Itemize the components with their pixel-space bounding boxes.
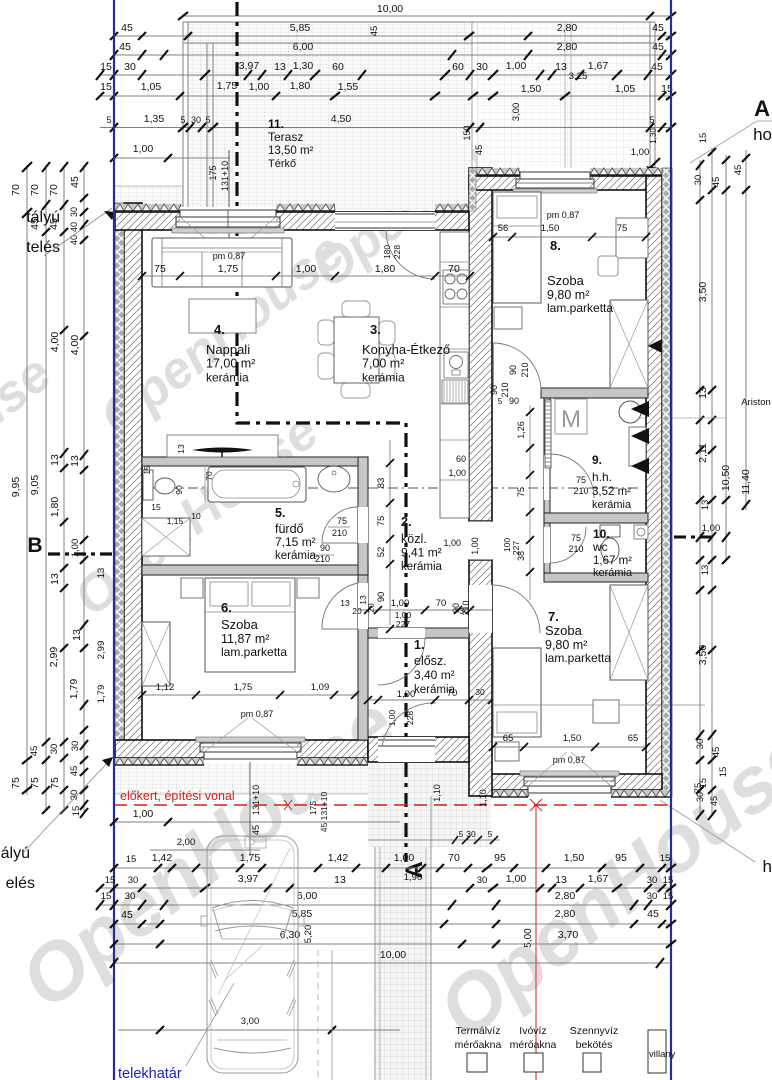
svg-text:lam.parketta: lam.parketta xyxy=(547,301,613,315)
svg-text:13: 13 xyxy=(555,61,567,73)
svg-text:10,00: 10,00 xyxy=(380,949,406,961)
svg-text:telés: telés xyxy=(26,239,60,256)
svg-text:1,00: 1,00 xyxy=(391,598,410,609)
svg-text:13: 13 xyxy=(555,874,567,886)
svg-text:1,75: 1,75 xyxy=(240,852,261,864)
svg-text:20: 20 xyxy=(352,606,362,616)
svg-text:5,85: 5,85 xyxy=(292,908,313,920)
svg-text:30: 30 xyxy=(475,687,485,697)
svg-text:1,67: 1,67 xyxy=(588,60,609,72)
svg-text:5: 5 xyxy=(488,830,493,839)
svg-text:1,00: 1,00 xyxy=(448,468,466,478)
svg-text:7.: 7. xyxy=(548,609,559,624)
svg-text:ályú: ályú xyxy=(1,845,30,862)
svg-text:70: 70 xyxy=(29,184,41,196)
svg-text:70: 70 xyxy=(10,184,22,196)
svg-text:210: 210 xyxy=(573,486,588,496)
svg-text:11,40: 11,40 xyxy=(740,469,752,495)
svg-text:pm 0,87: pm 0,87 xyxy=(213,251,246,261)
svg-text:2,99: 2,99 xyxy=(48,647,60,668)
svg-text:Konyha-Étkező: Konyha-Étkező xyxy=(362,342,450,357)
svg-text:4,00: 4,00 xyxy=(69,335,81,356)
svg-text:13: 13 xyxy=(69,455,81,467)
svg-text:1,00: 1,00 xyxy=(133,143,154,155)
svg-text:4,50: 4,50 xyxy=(331,113,352,125)
svg-text:45: 45 xyxy=(119,41,131,53)
svg-text:60: 60 xyxy=(456,454,466,464)
svg-text:75: 75 xyxy=(337,516,347,526)
svg-text:15: 15 xyxy=(718,767,729,778)
svg-text:45: 45 xyxy=(711,177,722,188)
svg-text:M: M xyxy=(561,406,581,433)
svg-text:1,10: 1,10 xyxy=(432,784,442,802)
svg-text:15: 15 xyxy=(100,81,112,93)
svg-text:45: 45 xyxy=(29,746,40,757)
svg-text:30: 30 xyxy=(477,875,488,886)
svg-text:30: 30 xyxy=(69,207,79,217)
svg-text:1.: 1. xyxy=(414,638,424,652)
svg-text:70: 70 xyxy=(204,471,214,481)
svg-text:kerámia: kerámia xyxy=(206,371,249,385)
svg-text:45: 45 xyxy=(652,22,664,34)
svg-text:45: 45 xyxy=(69,176,81,188)
svg-text:előkert, építési vonal: előkert, építési vonal xyxy=(120,789,235,803)
svg-text:70: 70 xyxy=(436,598,447,609)
svg-text:210: 210 xyxy=(520,362,530,377)
svg-text:40: 40 xyxy=(69,222,79,232)
svg-text:15: 15 xyxy=(71,806,82,817)
svg-text:1,00: 1,00 xyxy=(394,852,415,864)
svg-text:65: 65 xyxy=(628,733,639,744)
svg-text:kerámia: kerámia xyxy=(401,561,443,573)
svg-text:11.: 11. xyxy=(268,117,284,131)
svg-text:13: 13 xyxy=(96,568,107,579)
svg-text:B: B xyxy=(27,534,42,557)
svg-text:1,00: 1,00 xyxy=(296,263,317,275)
svg-text:kerámia: kerámia xyxy=(275,550,317,562)
svg-text:h.h.: h.h. xyxy=(592,470,612,484)
svg-text:30: 30 xyxy=(695,739,706,750)
svg-text:13: 13 xyxy=(176,444,186,454)
svg-text:Szennyvíz: Szennyvíz xyxy=(570,1025,618,1037)
svg-text:1,67: 1,67 xyxy=(588,873,609,885)
svg-text:3,97: 3,97 xyxy=(238,873,259,885)
svg-text:60: 60 xyxy=(332,61,344,73)
svg-text:228: 228 xyxy=(392,245,402,259)
svg-text:10: 10 xyxy=(191,511,201,521)
svg-text:13,50 m²: 13,50 m² xyxy=(268,145,314,157)
svg-text:30: 30 xyxy=(695,792,705,802)
svg-text:bekötés: bekötés xyxy=(576,1039,613,1051)
svg-text:2,11: 2,11 xyxy=(697,443,709,463)
svg-text:3,97: 3,97 xyxy=(239,60,260,72)
svg-text:10,50: 10,50 xyxy=(720,465,732,491)
svg-text:13: 13 xyxy=(274,61,286,73)
svg-text:3,25: 3,25 xyxy=(569,71,588,82)
svg-text:wc: wc xyxy=(592,540,608,554)
svg-text:3.: 3. xyxy=(370,322,381,337)
svg-text:5,20: 5,20 xyxy=(303,925,314,944)
svg-text:mérőakna: mérőakna xyxy=(510,1039,557,1051)
svg-text:9,95: 9,95 xyxy=(10,477,22,498)
svg-text:45: 45 xyxy=(369,26,380,37)
svg-text:131+10: 131+10 xyxy=(220,161,230,191)
svg-text:h: h xyxy=(763,857,772,876)
svg-text:45: 45 xyxy=(121,909,133,921)
svg-text:Terasz: Terasz xyxy=(268,130,303,144)
svg-text:70: 70 xyxy=(448,852,460,864)
svg-text:90: 90 xyxy=(320,543,330,553)
svg-text:1,80: 1,80 xyxy=(375,263,396,275)
svg-text:1,05: 1,05 xyxy=(141,81,162,93)
svg-text:40: 40 xyxy=(69,235,79,245)
svg-text:3,50: 3,50 xyxy=(697,282,709,303)
svg-text:70: 70 xyxy=(48,184,60,196)
svg-text:5: 5 xyxy=(180,115,185,125)
svg-text:1,00: 1,00 xyxy=(631,147,650,158)
svg-text:45: 45 xyxy=(251,825,261,835)
svg-text:1,00: 1,00 xyxy=(133,808,154,820)
svg-text:1,15: 1,15 xyxy=(167,516,184,526)
svg-text:1,79: 1,79 xyxy=(68,679,80,700)
svg-text:1,26: 1,26 xyxy=(516,421,526,439)
svg-text:2,80: 2,80 xyxy=(555,890,576,902)
svg-text:45: 45 xyxy=(69,766,80,777)
svg-text:1,50: 1,50 xyxy=(564,852,585,864)
svg-text:70: 70 xyxy=(448,263,460,275)
svg-text:8.: 8. xyxy=(550,238,561,253)
svg-text:kerámia: kerámia xyxy=(593,567,633,579)
svg-text:45 131+10: 45 131+10 xyxy=(319,792,329,833)
svg-text:4,00: 4,00 xyxy=(49,332,61,353)
svg-text:9,41 m²: 9,41 m² xyxy=(401,546,442,560)
svg-text:1,00: 1,00 xyxy=(249,81,270,93)
svg-text:1,10: 1,10 xyxy=(478,789,488,807)
svg-text:5,85: 5,85 xyxy=(290,22,311,34)
svg-text:210: 210 xyxy=(332,528,347,538)
svg-text:45: 45 xyxy=(651,61,663,73)
svg-text:30: 30 xyxy=(124,61,136,73)
svg-text:Szoba: Szoba xyxy=(221,617,259,632)
svg-text:pm 0,87: pm 0,87 xyxy=(547,210,580,220)
svg-text:30: 30 xyxy=(128,875,139,886)
svg-text:1,75: 1,75 xyxy=(234,682,253,693)
svg-text:60: 60 xyxy=(452,61,464,73)
svg-text:2.: 2. xyxy=(401,515,411,529)
svg-text:4.: 4. xyxy=(214,322,225,337)
svg-text:1,00: 1,00 xyxy=(702,523,721,534)
svg-text:elés: elés xyxy=(6,875,35,892)
svg-text:9.: 9. xyxy=(592,453,602,467)
svg-text:1,90: 1,90 xyxy=(404,872,423,883)
svg-text:227: 227 xyxy=(396,619,410,629)
svg-text:Ariston: Ariston xyxy=(741,397,771,408)
svg-text:1,50: 1,50 xyxy=(563,733,582,744)
svg-text:90: 90 xyxy=(174,485,184,495)
svg-text:Szoba: Szoba xyxy=(545,623,583,638)
svg-text:1,79: 1,79 xyxy=(96,685,107,704)
svg-text:2,00: 2,00 xyxy=(177,837,196,848)
svg-text:3,40 m²: 3,40 m² xyxy=(414,668,455,682)
svg-text:175: 175 xyxy=(208,165,218,180)
svg-text:13: 13 xyxy=(334,874,346,886)
svg-text:9,80 m²: 9,80 m² xyxy=(547,288,589,302)
svg-text:6.: 6. xyxy=(221,600,232,615)
svg-text:1,12: 1,12 xyxy=(156,682,175,693)
svg-text:7,00 m²: 7,00 m² xyxy=(362,357,404,371)
svg-text:95: 95 xyxy=(494,852,506,864)
svg-text:75: 75 xyxy=(516,487,526,497)
svg-text:elősz.: elősz. xyxy=(414,654,447,668)
svg-text:tályú: tályú xyxy=(26,209,60,226)
svg-text:1,30: 1,30 xyxy=(293,60,314,72)
svg-text:1,30: 1,30 xyxy=(649,128,658,144)
svg-text:75: 75 xyxy=(10,777,22,789)
svg-text:3,70: 3,70 xyxy=(558,929,579,941)
svg-text:75: 75 xyxy=(617,223,628,234)
svg-text:Ivóvíz: Ivóvíz xyxy=(519,1025,546,1037)
svg-text:45: 45 xyxy=(647,908,659,920)
svg-text:75: 75 xyxy=(576,475,586,485)
svg-text:mérőakna: mérőakna xyxy=(455,1039,502,1051)
svg-text:A: A xyxy=(754,96,770,121)
svg-text:30: 30 xyxy=(476,61,488,73)
svg-text:Termálvíz: Termálvíz xyxy=(456,1025,501,1037)
svg-text:13: 13 xyxy=(71,629,83,641)
svg-text:15: 15 xyxy=(151,502,161,512)
svg-text:75: 75 xyxy=(49,777,61,789)
svg-text:90: 90 xyxy=(509,396,519,406)
svg-text:kerámia: kerámia xyxy=(414,684,456,696)
svg-text:175: 175 xyxy=(308,801,318,815)
svg-text:15: 15 xyxy=(660,853,671,864)
svg-text:5,00: 5,00 xyxy=(523,928,534,948)
svg-text:1,50: 1,50 xyxy=(541,223,560,234)
svg-text:45: 45 xyxy=(474,145,485,156)
svg-text:75: 75 xyxy=(376,516,387,527)
svg-text:15: 15 xyxy=(663,891,674,902)
svg-text:5: 5 xyxy=(498,397,503,406)
svg-text:65: 65 xyxy=(503,733,514,744)
svg-text:56: 56 xyxy=(498,223,509,234)
svg-text:közl.: közl. xyxy=(401,532,427,546)
svg-text:13: 13 xyxy=(49,454,61,466)
svg-text:1,00: 1,00 xyxy=(443,538,461,548)
svg-text:2,80: 2,80 xyxy=(557,41,578,53)
svg-text:pm 0,87: pm 0,87 xyxy=(241,709,274,719)
svg-text:Térkő: Térkő xyxy=(268,158,296,170)
svg-text:1,42: 1,42 xyxy=(328,852,349,864)
svg-text:1,75: 1,75 xyxy=(218,263,239,275)
svg-text:1,35: 1,35 xyxy=(144,113,165,125)
svg-text:5: 5 xyxy=(459,830,464,839)
svg-text:3,50: 3,50 xyxy=(697,645,709,666)
svg-text:45: 45 xyxy=(709,796,719,806)
svg-text:180: 180 xyxy=(382,245,392,259)
svg-text:228: 228 xyxy=(405,711,415,725)
svg-text:83: 83 xyxy=(376,478,387,489)
svg-text:kerámia: kerámia xyxy=(592,499,632,511)
svg-text:90: 90 xyxy=(489,385,499,395)
svg-text:30: 30 xyxy=(125,891,136,902)
svg-text:fürdő: fürdő xyxy=(275,522,304,536)
svg-text:75: 75 xyxy=(154,263,166,275)
svg-text:5.: 5. xyxy=(275,506,285,520)
svg-text:95: 95 xyxy=(615,852,627,864)
svg-text:30: 30 xyxy=(693,175,704,186)
svg-text:villany: villany xyxy=(649,1049,676,1060)
svg-text:15: 15 xyxy=(698,133,709,144)
svg-text:13: 13 xyxy=(49,573,61,585)
svg-text:Szoba: Szoba xyxy=(547,273,585,288)
svg-text:1,75: 1,75 xyxy=(217,80,238,92)
svg-text:15: 15 xyxy=(143,465,152,474)
svg-text:7,15 m²: 7,15 m² xyxy=(275,535,316,549)
svg-text:90: 90 xyxy=(508,365,518,375)
svg-text:1,55: 1,55 xyxy=(338,81,359,93)
svg-text:15: 15 xyxy=(698,778,708,788)
svg-text:75: 75 xyxy=(29,777,41,789)
svg-text:3,00: 3,00 xyxy=(511,103,522,122)
svg-text:lam.parketta: lam.parketta xyxy=(221,645,287,659)
svg-text:9,05: 9,05 xyxy=(29,475,41,496)
svg-text:1,80: 1,80 xyxy=(290,80,311,92)
svg-text:lam.parketta: lam.parketta xyxy=(545,651,611,665)
svg-text:45: 45 xyxy=(711,747,722,758)
svg-text:1,00: 1,00 xyxy=(387,709,397,726)
svg-text:13: 13 xyxy=(340,598,350,608)
svg-text:1,42: 1,42 xyxy=(152,852,173,864)
svg-text:45: 45 xyxy=(652,41,664,53)
svg-text:2,80: 2,80 xyxy=(557,22,578,34)
svg-text:10,00: 10,00 xyxy=(377,3,403,15)
svg-text:45: 45 xyxy=(121,22,133,34)
svg-text:1,00: 1,00 xyxy=(506,60,527,72)
svg-text:30: 30 xyxy=(459,606,469,616)
svg-text:telekhatár: telekhatár xyxy=(118,1066,182,1080)
svg-text:13: 13 xyxy=(700,500,711,511)
svg-text:13: 13 xyxy=(697,387,709,399)
svg-text:30: 30 xyxy=(70,741,81,752)
svg-text:1,00: 1,00 xyxy=(397,689,416,700)
svg-text:ho: ho xyxy=(753,125,772,144)
svg-text:30: 30 xyxy=(49,744,60,755)
svg-text:1,05: 1,05 xyxy=(615,83,636,95)
svg-text:1,80: 1,80 xyxy=(49,497,61,518)
svg-text:10.: 10. xyxy=(593,527,610,541)
svg-text:9,80 m²: 9,80 m² xyxy=(545,638,587,652)
svg-text:3,52 m²: 3,52 m² xyxy=(592,486,631,498)
svg-text:1,67 m²: 1,67 m² xyxy=(593,555,632,567)
svg-text:210: 210 xyxy=(315,554,330,564)
svg-text:11,87 m²: 11,87 m² xyxy=(221,632,269,646)
svg-text:17,00 m²: 17,00 m² xyxy=(206,357,255,371)
svg-text:15: 15 xyxy=(101,891,112,902)
svg-text:1,00: 1,00 xyxy=(506,873,527,885)
svg-text:1,50: 1,50 xyxy=(521,83,542,95)
svg-text:2,80: 2,80 xyxy=(555,908,576,920)
svg-text:kerámia: kerámia xyxy=(362,371,405,385)
svg-text:30: 30 xyxy=(69,790,80,801)
svg-text:2,99: 2,99 xyxy=(96,641,107,660)
svg-text:52: 52 xyxy=(376,547,387,558)
svg-text:13: 13 xyxy=(700,565,711,576)
svg-text:6,00: 6,00 xyxy=(297,890,318,902)
svg-text:1,00: 1,00 xyxy=(470,537,480,555)
svg-text:3,00: 3,00 xyxy=(241,1016,260,1027)
svg-text:Nappali: Nappali xyxy=(206,342,250,357)
svg-text:75: 75 xyxy=(571,533,581,543)
svg-text:150: 150 xyxy=(462,125,472,140)
svg-text:6,00: 6,00 xyxy=(293,41,314,53)
svg-text:1,09: 1,09 xyxy=(311,682,330,693)
svg-text:15: 15 xyxy=(105,875,116,886)
svg-text:15: 15 xyxy=(126,854,137,865)
svg-text:210: 210 xyxy=(568,544,583,554)
svg-text:45: 45 xyxy=(733,165,744,176)
svg-text:90: 90 xyxy=(376,592,387,603)
svg-text:5: 5 xyxy=(106,115,111,125)
svg-text:131+10: 131+10 xyxy=(251,785,261,815)
svg-text:227: 227 xyxy=(511,541,521,555)
